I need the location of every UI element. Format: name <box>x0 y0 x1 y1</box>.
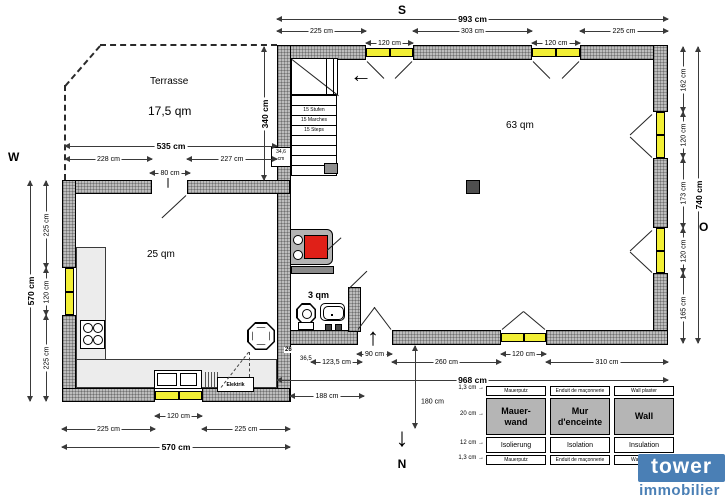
dim-left_1: 225 cm <box>46 181 47 268</box>
compass-east: O <box>699 220 708 234</box>
door-swing <box>562 61 580 79</box>
dim-label: 173 cm <box>681 180 688 207</box>
floor-plan: S W O ↓ N ↑ ↑ <box>0 0 725 500</box>
wall-segment <box>392 330 501 345</box>
dim-label: 340 cm <box>260 97 270 130</box>
dim-label: 303 cm <box>459 28 486 36</box>
window <box>656 112 665 158</box>
chimney-column <box>466 180 480 194</box>
dim-label: 120 cm <box>681 237 688 264</box>
window <box>155 391 202 400</box>
terrace-dashed-corner <box>64 45 100 86</box>
dim-right_win2: 120 cm <box>683 228 684 273</box>
dim-right_win1: 120 cm <box>683 112 684 158</box>
dim-right_3: 165 cm <box>683 273 684 343</box>
dim-top_mid: 303 cm <box>413 31 532 32</box>
dim-left_win: 120 cm <box>46 268 47 315</box>
dim-label: 225 cm <box>44 345 51 372</box>
wall-segment <box>62 388 155 402</box>
dim-b_310: 310 cm <box>546 362 668 363</box>
cooktop-burner <box>93 323 103 333</box>
stairs-direction-arrow-icon: ← <box>348 62 374 88</box>
dim-b_26: 26 <box>284 347 293 353</box>
legend-cell: Wall <box>614 398 674 435</box>
legend-column-fr: Enduit de maçonnerie Mur d'enceinte Isol… <box>550 386 610 467</box>
dim-b_door: 90 cm <box>357 354 392 355</box>
entry-arrow-icon: ↑ <box>362 324 384 352</box>
legend-thickness-value: 12 cm <box>460 440 476 446</box>
compass-west: W <box>8 150 19 164</box>
stove-knob <box>293 235 303 245</box>
dim-label: 993 cm <box>456 15 489 25</box>
wall-segment <box>62 180 76 268</box>
dim-top_total: 993 cm <box>277 19 668 20</box>
dim-left_2: 225 cm <box>46 315 47 401</box>
legend-thickness-value: 1,3 cm <box>458 455 476 461</box>
dim-label: 225 cm <box>95 426 122 434</box>
door-swing <box>533 61 551 79</box>
stair-winder-line <box>333 59 334 94</box>
window <box>532 48 580 57</box>
dim-left_total: 570 cm <box>30 181 31 401</box>
dim-bl_win: 120 cm <box>155 416 202 417</box>
wall-wc-partition <box>291 266 334 274</box>
legend-cell: Mur d'enceinte <box>550 398 610 435</box>
dim-label: 535 cm <box>155 142 188 152</box>
door-swing <box>395 61 413 79</box>
door-swing <box>162 195 187 218</box>
dim-label: 180 cm <box>419 398 446 405</box>
wall-segment <box>187 180 290 194</box>
brand-logo-box: tower <box>638 454 725 482</box>
legend-thickness: 12 cm → <box>448 440 484 446</box>
dim-label: 120 cm <box>165 413 192 421</box>
legend-column-de: Mauerputz Mauer- wand Isolierung Mauerpu… <box>486 386 546 467</box>
sink-basin <box>180 373 197 386</box>
wc-sink-basin <box>323 306 344 320</box>
drainboard-line <box>211 372 212 387</box>
dim-top_win1: 120 cm <box>366 43 413 44</box>
cooktop-burner <box>93 335 103 345</box>
dim-terrace_door: 80 cm <box>150 173 190 174</box>
stove-firebox <box>304 235 328 259</box>
dim-bl_2: 225 cm <box>202 429 290 430</box>
window <box>65 268 74 315</box>
room-label-terrace: Terrasse <box>150 76 188 87</box>
dim-label: 225 cm <box>44 211 51 238</box>
window-swing <box>523 311 545 330</box>
elektrik-dashed-line <box>249 352 250 377</box>
wc-sink-foot <box>335 324 342 331</box>
brand-logo-subtitle: immobilier <box>634 482 725 499</box>
right-arrow-icon: → <box>478 385 484 391</box>
dim-b_total: 968 cm <box>277 380 668 381</box>
stove-knob <box>293 250 303 260</box>
dim-top_left: 225 cm <box>277 31 366 32</box>
wc-sink-drain <box>331 314 333 316</box>
compass-south: S <box>398 3 406 17</box>
right-arrow-icon: → <box>478 455 484 461</box>
dim-right_1: 162 cm <box>683 47 684 112</box>
room-area-living: 63 qm <box>506 120 534 131</box>
dim-label: 228 cm <box>95 156 122 164</box>
drainboard-line <box>205 372 206 387</box>
room-area-wc: 3 qm <box>308 290 329 300</box>
dim-top_win2: 120 cm <box>532 43 580 44</box>
room-area-terrace: 17,5 qm <box>148 104 191 118</box>
legend-cell: Mauer- wand <box>486 398 546 435</box>
dim-bl_1: 225 cm <box>62 429 155 430</box>
window-swing <box>630 137 653 158</box>
dim-label: 123,5 cm <box>320 359 353 367</box>
dim-label: 570 cm <box>26 275 36 308</box>
dim-bl_total: 570 cm <box>62 447 290 448</box>
dim-label: 570 cm <box>160 443 193 453</box>
dim-label: 90 cm <box>363 351 386 359</box>
north-arrow-icon: ↓ <box>391 422 413 453</box>
dim-b_1235: 123,5 cm <box>311 362 362 363</box>
dim-label: 225 cm <box>308 28 335 36</box>
legend-cell: Mauerputz <box>486 386 546 396</box>
sink-basin <box>157 373 177 386</box>
window <box>501 333 546 342</box>
dim-b_180: 180 cm <box>415 346 416 428</box>
legend-cell: Enduit de maçonnerie <box>550 386 610 396</box>
drainboard-line <box>214 372 215 387</box>
legend-thickness-value: 20 cm <box>460 411 476 417</box>
dim-label: 225 cm <box>611 28 638 36</box>
legend-cell: Isolation <box>550 437 610 453</box>
dim-label: 740 cm <box>694 179 704 212</box>
dim-label: 260 cm <box>433 359 460 367</box>
wc-sink-foot <box>325 324 332 331</box>
dim-right_total: 740 cm <box>698 47 699 343</box>
wall-segment <box>653 45 668 112</box>
wall-segment <box>653 158 668 228</box>
dim-label: 162 cm <box>681 66 688 93</box>
stair-post <box>324 163 338 174</box>
dim-label: 120 cm <box>510 351 537 359</box>
wall-segment <box>413 45 532 60</box>
dim-label: 227 cm <box>219 156 246 164</box>
dim-b_260: 260 cm <box>392 362 501 363</box>
terrace-dashed-top <box>100 44 277 46</box>
drainboard-line <box>208 372 209 387</box>
dim-label: 80 cm <box>158 170 181 178</box>
dim-label: 120 cm <box>376 40 403 48</box>
dim-label: 225 cm <box>233 426 260 434</box>
dim-b_188: 188 cm <box>290 396 364 397</box>
legend-cell: Insulation <box>614 437 674 453</box>
window-swing <box>630 114 653 135</box>
room-area-kitchen: 25 qm <box>147 249 175 260</box>
water-heater-ring <box>252 327 270 345</box>
compass-north: N <box>391 457 413 471</box>
toilet-base <box>298 322 314 330</box>
window <box>366 48 413 57</box>
legend-thickness-value: 1,3 cm <box>458 385 476 391</box>
cooktop-burner <box>83 335 93 345</box>
window-swing <box>630 230 653 251</box>
toilet-drain <box>302 309 312 319</box>
legend-cell: Isolierung <box>486 437 546 453</box>
terrace-dashed-left <box>64 85 66 180</box>
wall-segment <box>546 330 668 345</box>
dim-label: 188 cm <box>314 393 341 401</box>
window <box>656 228 665 273</box>
dim-terrace_depth: 340 cm <box>264 47 265 180</box>
dim-terrace_left: 228 cm <box>65 159 152 160</box>
legend-thickness: 1,3 cm → <box>448 385 484 391</box>
dim-label: 120 cm <box>681 122 688 149</box>
legend-thickness: 1,3 cm → <box>448 455 484 461</box>
dim-terrace_total: 535 cm <box>65 146 277 147</box>
right-arrow-icon: → <box>478 411 484 417</box>
cooktop-burner <box>83 323 93 333</box>
legend-cell: Wall plaster <box>614 386 674 396</box>
dim-label: 120 cm <box>44 278 51 305</box>
dim-top_right: 225 cm <box>580 31 668 32</box>
right-arrow-icon: → <box>478 440 484 446</box>
window-swing <box>630 252 653 273</box>
dim-label: 310 cm <box>594 359 621 367</box>
dim-b_win: 120 cm <box>501 354 546 355</box>
legend-cell: Mauerputz <box>486 455 546 465</box>
legend-cell: Enduit de maçonnerie <box>550 455 610 465</box>
stair-winder-line <box>326 59 327 94</box>
dim-label: 165 cm <box>681 295 688 322</box>
dim-label: 120 cm <box>543 40 570 48</box>
window-swing <box>502 311 524 330</box>
dim-right_2: 173 cm <box>683 158 684 228</box>
legend-thickness: 20 cm → <box>448 411 484 417</box>
